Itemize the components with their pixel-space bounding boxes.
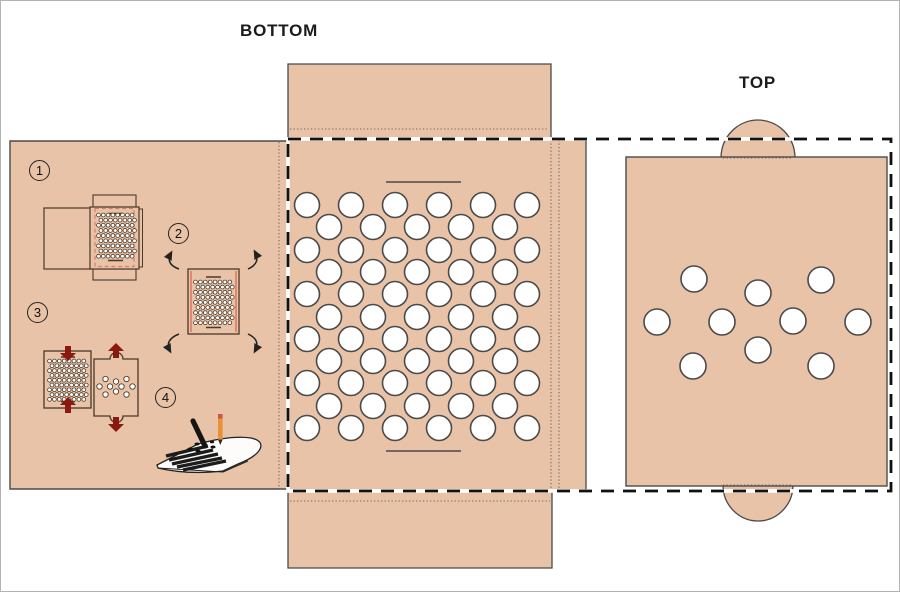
hole [97,384,102,389]
hole [123,218,127,222]
hole [216,285,220,289]
hole [218,280,222,284]
hole [206,306,210,310]
hole [62,359,66,363]
hole [124,392,129,397]
hole [125,244,129,248]
hole [196,316,200,320]
hole [130,213,134,217]
hole [196,285,200,289]
hole [216,306,220,310]
hole [201,285,205,289]
hole [72,359,76,363]
hole [109,218,113,222]
hole [427,238,452,263]
hole [493,260,518,285]
hole [111,234,115,238]
hole [427,193,452,218]
hole [317,215,342,240]
hole [221,316,225,320]
hole [361,260,386,285]
hole [82,398,86,402]
hole [84,364,88,368]
hole [75,374,79,378]
hole [339,282,364,307]
hole [62,378,66,382]
hole [206,295,210,299]
hole [295,327,320,352]
hole [361,305,386,330]
hole [130,384,135,389]
hole [133,229,137,233]
hole [97,213,101,217]
hole [106,223,110,227]
hole [515,282,540,307]
hole [201,295,205,299]
hole [65,383,69,387]
hole [745,337,771,363]
hole [339,416,364,441]
hole [199,311,203,315]
hole [116,234,120,238]
hole [125,234,129,238]
hole [57,388,61,392]
pencil [218,414,223,445]
hole [213,290,217,294]
hole [111,223,115,227]
hole [405,215,430,240]
hole [216,316,220,320]
hole [72,369,76,373]
hole [208,321,212,325]
step-3-badge: 3 [27,302,48,323]
hole [48,359,52,363]
hole [65,374,69,378]
hole [67,388,71,392]
hole [116,244,120,248]
hole [709,309,735,335]
hole [471,416,496,441]
hole [211,285,215,289]
hole [106,254,110,258]
hole [361,215,386,240]
hole [107,384,112,389]
hole [125,254,129,258]
hole [130,234,134,238]
hole [383,416,408,441]
hole [225,306,229,310]
hole [223,321,227,325]
hole [449,215,474,240]
hole [194,290,198,294]
hole [53,369,57,373]
hole [128,218,132,222]
hole [103,376,108,381]
hole [121,244,125,248]
hole [133,239,137,243]
hole [77,359,81,363]
step-2-badge: 2 [168,223,189,244]
hole [218,321,222,325]
hole [109,239,113,243]
step1-flap-top [93,195,136,207]
hole [194,280,198,284]
hole [65,393,69,397]
hole [780,308,806,334]
instructions-panel [10,141,288,489]
hole [199,290,203,294]
hole [97,254,101,258]
hole [405,260,430,285]
hole [77,388,81,392]
hole [113,229,117,233]
hole [845,309,871,335]
step-1-badge: 1 [29,160,50,181]
hole [199,321,203,325]
hole [48,378,52,382]
hole [515,193,540,218]
hole [55,374,59,378]
hole [449,349,474,374]
hole [50,393,54,397]
hole [55,383,59,387]
hole [295,282,320,307]
hole [60,383,64,387]
hole [317,260,342,285]
hole [106,213,110,217]
hole [121,213,125,217]
hole [79,364,83,368]
hole [70,393,74,397]
hole [101,244,105,248]
hole [203,290,207,294]
hole [53,378,57,382]
hole [99,249,103,253]
hole [72,398,76,402]
hole [104,229,108,233]
hole [70,364,74,368]
hole [493,305,518,330]
hole [218,290,222,294]
hole [228,301,232,305]
hole [57,369,61,373]
hole [208,290,212,294]
step1-hole-grid [97,213,137,258]
top-template-label: TOP [739,73,776,93]
top-template [626,120,887,521]
hole [97,223,101,227]
hole [53,388,57,392]
hole [361,394,386,419]
hole [111,244,115,248]
hole [225,295,229,299]
template-sheet: BOTTOM TOP 1 2 3 4 [0,0,900,592]
step-4-badge: 4 [155,387,176,408]
hole [109,249,113,253]
hole [225,316,229,320]
hole [405,305,430,330]
hole [228,290,232,294]
hole [218,301,222,305]
hole [75,393,79,397]
hole [121,254,125,258]
hole [228,311,232,315]
hole [48,388,52,392]
hole [203,301,207,305]
hole [106,234,110,238]
hole [493,349,518,374]
hole [194,311,198,315]
hole [57,378,61,382]
hole [493,394,518,419]
hole [471,327,496,352]
hole [228,280,232,284]
hole [230,306,234,310]
hole [339,193,364,218]
hole [84,393,88,397]
hole [133,218,137,222]
hole [213,311,217,315]
hole [62,388,66,392]
hole [216,295,220,299]
bottom-top-flap [288,64,551,139]
hole [55,393,59,397]
hole [515,371,540,396]
hole [221,285,225,289]
hole [82,378,86,382]
hole [471,371,496,396]
hole [405,349,430,374]
hole [449,305,474,330]
hole [471,238,496,263]
hole [221,295,225,299]
hole [133,249,137,253]
hole [72,378,76,382]
hole [745,280,771,306]
hole [295,238,320,263]
hole [70,374,74,378]
hole [213,280,217,284]
hole [339,238,364,263]
hole [79,393,83,397]
hole [808,353,834,379]
hole [77,378,81,382]
hole [203,321,207,325]
hole [449,394,474,419]
hole [60,374,64,378]
hole [295,416,320,441]
hole [221,306,225,310]
hole [104,249,108,253]
hole [199,280,203,284]
hole [203,280,207,284]
hole [118,229,122,233]
hole [79,383,83,387]
hole [213,301,217,305]
hole [405,394,430,419]
hole [383,327,408,352]
hole [125,213,129,217]
hole [228,321,232,325]
hole [471,282,496,307]
hole [427,282,452,307]
hole [230,295,234,299]
hole [130,223,134,227]
hole [680,353,706,379]
hole [194,321,198,325]
hole [60,393,64,397]
hole [82,359,86,363]
hole [50,364,54,368]
hole [116,254,120,258]
hole [206,285,210,289]
hole [427,416,452,441]
hole [53,359,57,363]
hole [121,234,125,238]
hole [99,239,103,243]
hole [211,295,215,299]
hole [223,280,227,284]
hole [317,305,342,330]
hole [79,374,83,378]
hole [196,306,200,310]
hole [201,316,205,320]
hole [515,327,540,352]
hole [101,234,105,238]
hole [57,359,61,363]
hole [48,369,52,373]
hole [128,249,132,253]
hole [128,239,132,243]
hole [118,218,122,222]
hole [101,213,105,217]
hole [82,369,86,373]
hole [109,229,113,233]
hole [208,311,212,315]
hole [113,379,118,384]
hole [383,238,408,263]
hole [118,239,122,243]
step1-flap-bottom [93,269,136,280]
hole [57,398,61,402]
hole [84,383,88,387]
hole [339,327,364,352]
hole [75,383,79,387]
hole [196,295,200,299]
hole [97,244,101,248]
hole [211,316,215,320]
hole [101,223,105,227]
hole [295,371,320,396]
step2-hole-grid [194,280,235,325]
hole [471,193,496,218]
hole [113,239,117,243]
hole [84,374,88,378]
hole [75,364,79,368]
hole [113,389,118,394]
hole [295,193,320,218]
hole [218,311,222,315]
hole [77,369,81,373]
hole [101,254,105,258]
hole [106,244,110,248]
hole [130,244,134,248]
hole [55,364,59,368]
hole [121,223,125,227]
hole [67,378,71,382]
hole [123,249,127,253]
hole [50,374,54,378]
hole [644,309,670,335]
hole [199,301,203,305]
hole [515,416,540,441]
hole [111,254,115,258]
hole [99,229,103,233]
hole [339,371,364,396]
hole [383,282,408,307]
hole [223,311,227,315]
hole [113,218,117,222]
hole [383,371,408,396]
hole [206,316,210,320]
hole [211,306,215,310]
hole [62,369,66,373]
hole [213,321,217,325]
hole [103,392,108,397]
hole [97,234,101,238]
step3-hole-grid [48,359,89,401]
hole [99,218,103,222]
hole [361,349,386,374]
hole [208,301,212,305]
hole [116,213,120,217]
hole [427,327,452,352]
hole [123,229,127,233]
hole [515,238,540,263]
hole [70,383,74,387]
hole [230,285,234,289]
hole [383,193,408,218]
hole [104,239,108,243]
hole [194,301,198,305]
bottom-template-label: BOTTOM [240,21,318,41]
hole [317,349,342,374]
bottom-bottom-flap [288,491,552,568]
hole [104,218,108,222]
hole [123,239,127,243]
hole [223,301,227,305]
hole [111,213,115,217]
hole [113,249,117,253]
hole [681,266,707,292]
hole [72,388,76,392]
hole [77,398,81,402]
hole [60,364,64,368]
bottom-hole-grid [295,193,540,441]
hole [118,249,122,253]
hole [427,371,452,396]
hole [203,311,207,315]
hole [223,290,227,294]
hole [225,285,229,289]
hole [208,280,212,284]
hole [82,388,86,392]
hole [493,215,518,240]
hole [125,223,129,227]
hole [124,376,129,381]
hole [50,383,54,387]
hole [53,398,57,402]
